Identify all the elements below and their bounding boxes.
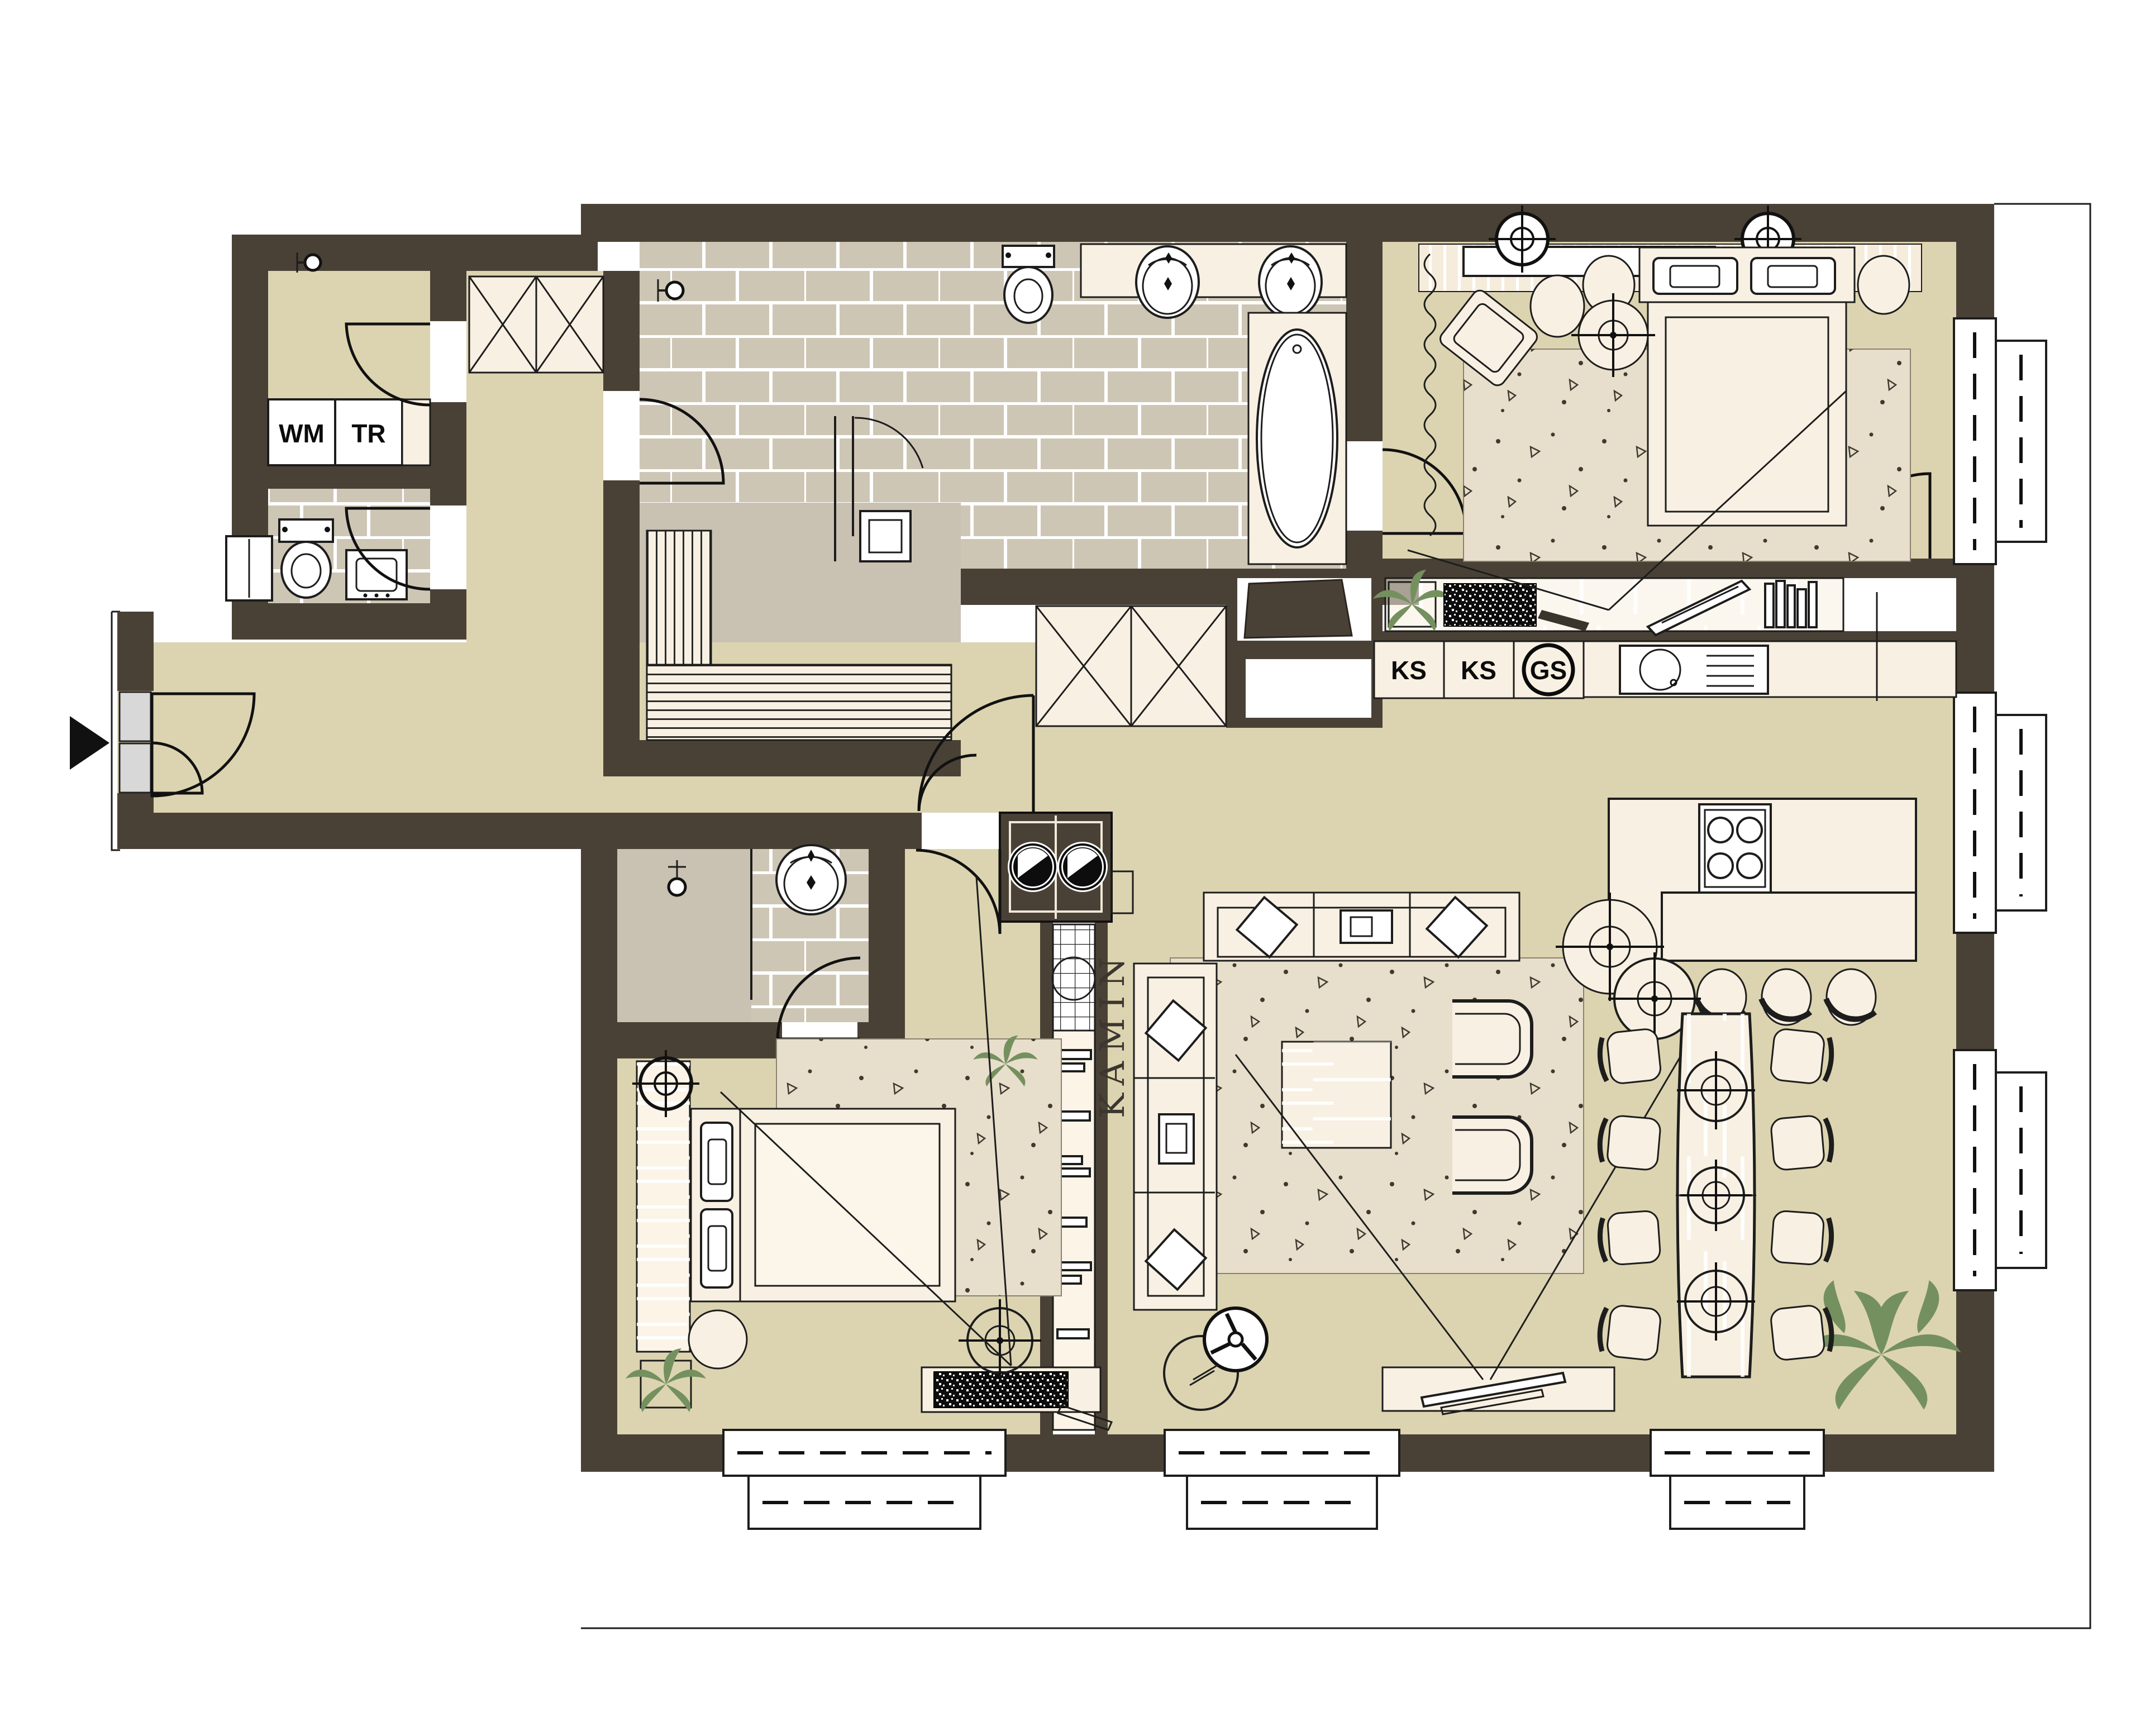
stool-icon	[1826, 969, 1876, 1025]
armchair-icon	[1452, 1001, 1532, 1077]
nightstand-icon	[689, 1310, 747, 1368]
armchair-icon	[1452, 1117, 1532, 1193]
sofa-top	[1204, 893, 1519, 961]
window-right-bedroom	[1954, 318, 2046, 564]
wardrobe-unit	[1131, 606, 1226, 726]
bedroom-master	[1408, 206, 1922, 610]
wardrobe-unit	[536, 276, 603, 373]
window-bottom-living-1	[1165, 1430, 1399, 1529]
stove-burner-icon	[1010, 845, 1055, 889]
hearth-grid	[1053, 924, 1095, 1031]
fireplace-label: KAMIN	[1093, 948, 1132, 1118]
cooktop-icon	[1699, 804, 1771, 893]
dryer-label: TR	[351, 419, 385, 448]
dishwasher-label: GS	[1530, 656, 1567, 685]
entry-arrow-icon	[70, 716, 109, 770]
bed-double	[691, 1109, 955, 1301]
bathroom-toilet-icon	[1003, 246, 1054, 323]
hall-east-floor	[961, 726, 1385, 813]
washbasin-icon	[346, 550, 407, 599]
sink-icon	[1259, 246, 1322, 318]
utility-cabinet	[402, 399, 430, 465]
books-icon	[1765, 581, 1817, 627]
fridge-2-label: KS	[1461, 656, 1496, 685]
fridge-1-label: KS	[1391, 656, 1427, 685]
kitchen-sink-icon	[1620, 646, 1768, 694]
nightstand-icon	[1858, 256, 1909, 314]
wardrobe-unit	[1036, 606, 1131, 726]
hall-wardrobes	[469, 276, 603, 373]
entry-door-leaf-2	[120, 743, 151, 793]
tv-on-sideboard	[1444, 584, 1536, 626]
wall-sideboard	[1373, 570, 1843, 635]
duct-door-leaf	[1245, 580, 1352, 638]
window-right-dining	[1954, 1050, 2046, 1290]
washing-machine-label: WM	[279, 419, 325, 448]
bathtub-icon	[1248, 313, 1346, 564]
toilet-icon	[279, 519, 333, 598]
shower-stool	[860, 511, 911, 561]
window-wc-left	[226, 536, 272, 600]
sofa-left	[1134, 964, 1217, 1310]
floor-plan: WM TR	[0, 0, 2145, 1736]
bed-double	[1639, 247, 1855, 526]
sink-icon	[1136, 246, 1199, 318]
tv-sideboard	[1383, 1367, 1614, 1414]
stool-icon	[1761, 969, 1811, 1025]
window-bottom-bedroom2	[723, 1430, 1005, 1529]
wardrobe-unit	[469, 276, 536, 373]
duct-niche-bottom	[1246, 659, 1371, 718]
entry-door-leaf-1	[120, 692, 151, 741]
ensuite-shower-floor	[617, 849, 751, 1022]
pouf-icon	[1531, 275, 1584, 337]
window-bottom-living-2	[1651, 1430, 1824, 1529]
round-sink-icon	[776, 845, 846, 914]
window-right-kitchen	[1954, 693, 2046, 933]
stove-burner-icon	[1060, 845, 1105, 889]
